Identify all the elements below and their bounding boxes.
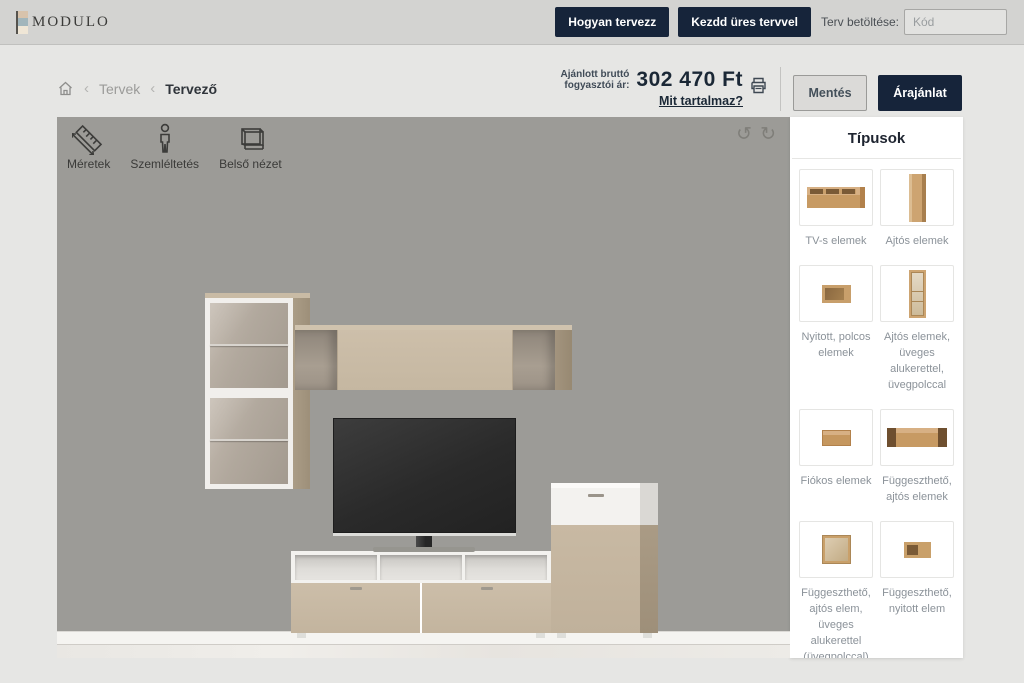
type-label: Ajtós elemek: [880, 233, 954, 249]
tall-door-thumb-icon: [909, 174, 926, 222]
design-canvas[interactable]: Méretek Szemléltetés Belső nézet ↺ ↻: [57, 117, 790, 658]
breadcrumb-designer: Tervező: [165, 81, 217, 97]
type-thumbnail: [799, 169, 873, 226]
divider: [780, 67, 781, 111]
wall-cabinet-open-right: [513, 330, 555, 390]
start-empty-plan-button[interactable]: Kezdd üres tervvel: [678, 7, 811, 37]
tv-stand-neck: [416, 536, 432, 547]
type-item-door-elements[interactable]: Ajtós elemek: [880, 169, 954, 249]
type-label: Függeszthető, ajtós elemek: [880, 473, 954, 505]
type-grid: TV-s elemek Ajtós elemek Nyitott, polcos…: [790, 159, 963, 658]
type-label: Ajtós elemek, üveges alukerettel, üvegpo…: [880, 329, 954, 393]
lowboard-door-left[interactable]: [291, 583, 420, 633]
type-thumbnail: [799, 521, 873, 578]
lowboard-slot: [465, 555, 547, 580]
quote-button[interactable]: Árajánlat: [878, 75, 962, 111]
logo[interactable]: MODULO: [16, 11, 110, 34]
illustration-label: Szemléltetés: [130, 157, 199, 171]
types-sidebar: Típusok TV-s elemek Ajtós elemek Nyitott…: [790, 117, 963, 658]
breadcrumb-plans[interactable]: Tervek: [99, 81, 140, 97]
price-amount: 302 470 Ft: [636, 68, 743, 92]
furniture-storage-cabinet[interactable]: [551, 483, 658, 633]
storage-cabinet-flap[interactable]: [551, 488, 640, 525]
cabinet-icon: [233, 123, 267, 155]
storage-cabinet-door[interactable]: [551, 525, 640, 633]
type-thumbnail: [799, 409, 873, 466]
glass-door-thumb-icon: [909, 270, 926, 318]
type-item-tv-elements[interactable]: TV-s elemek: [799, 169, 873, 249]
hanging-glass-thumb-icon: [822, 535, 851, 564]
load-plan-label: Terv betöltése:: [821, 15, 899, 29]
room-floor: [57, 645, 790, 658]
type-thumbnail: [880, 169, 954, 226]
type-item-glass-door-elements[interactable]: Ajtós elemek, üveges alukerettel, üvegpo…: [880, 265, 954, 393]
hanging-door-thumb-icon: [887, 428, 947, 447]
interior-view-label: Belső nézet: [219, 157, 282, 171]
tv-unit-thumb-icon: [807, 187, 865, 208]
undo-icon[interactable]: ↺: [736, 125, 752, 144]
home-icon[interactable]: [57, 80, 74, 97]
tv-stand-base: [373, 547, 475, 552]
app-header: MODULO Hogyan tervezz Kezdd üres tervvel…: [0, 0, 1024, 45]
dimensions-label: Méretek: [67, 157, 110, 171]
lowboard-slot: [380, 555, 462, 580]
type-label: TV-s elemek: [799, 233, 873, 249]
plan-code-input[interactable]: [904, 9, 1007, 35]
dimensions-tool[interactable]: Méretek: [63, 121, 114, 173]
open-shelf-thumb-icon: [822, 285, 851, 303]
price-details-link[interactable]: Mit tartalmaz?: [659, 94, 743, 108]
canvas-toolbar: Méretek Szemléltetés Belső nézet: [63, 121, 286, 173]
tv-screen[interactable]: [333, 418, 516, 533]
person-icon: [154, 123, 176, 155]
type-thumbnail: [799, 265, 873, 322]
drawer-thumb-icon: [822, 430, 851, 446]
furniture-tv-lowboard[interactable]: [291, 551, 551, 633]
illustration-tool[interactable]: Szemléltetés: [126, 121, 203, 173]
type-label: Függeszthető, nyitott elem: [880, 585, 954, 617]
lowboard-feet: [291, 633, 551, 638]
wall-cabinet-open-left: [295, 330, 337, 390]
lowboard-door-right[interactable]: [422, 583, 551, 633]
breadcrumb-separator: ‹: [84, 80, 89, 97]
how-to-design-button[interactable]: Hogyan tervezz: [555, 7, 669, 37]
type-item-hanging-glass-door-element[interactable]: Függeszthető, ajtós elem, üveges alukere…: [799, 521, 873, 658]
lowboard-open-shelves: [291, 551, 551, 583]
lowboard-slot: [295, 555, 377, 580]
furniture-wall-cabinet[interactable]: [295, 325, 572, 390]
type-label: Függeszthető, ajtós elem, üveges alukere…: [799, 585, 873, 658]
breadcrumb-separator: ‹: [150, 80, 155, 97]
price-block: Ajánlott bruttó fogyasztói ár: 302 470 F…: [561, 68, 743, 110]
logo-icon: [16, 11, 28, 34]
top-actions: Ajánlott bruttó fogyasztói ár: 302 470 F…: [561, 66, 962, 111]
price-label: Ajánlott bruttó fogyasztói ár:: [561, 69, 630, 91]
type-item-hanging-door-elements[interactable]: Függeszthető, ajtós elemek: [880, 409, 954, 505]
header-actions: Hogyan tervezz Kezdd üres tervvel Terv b…: [555, 7, 1007, 37]
furniture-glass-cabinet-stack[interactable]: [205, 293, 310, 489]
redo-icon[interactable]: ↻: [760, 125, 776, 144]
type-thumbnail: [880, 265, 954, 322]
logo-text: MODULO: [32, 14, 110, 31]
print-icon[interactable]: [749, 76, 768, 95]
lowboard-doors: [291, 583, 551, 633]
type-item-drawer-elements[interactable]: Fiókos elemek: [799, 409, 873, 489]
wall-cabinet-side: [555, 330, 572, 390]
sidebar-title: Típusok: [790, 117, 963, 158]
glass-cabinet-upper[interactable]: [205, 298, 293, 393]
storage-cabinet-side: [640, 483, 658, 633]
interior-view-tool[interactable]: Belső nézet: [215, 121, 286, 173]
type-thumbnail: [880, 521, 954, 578]
type-item-hanging-open-element[interactable]: Függeszthető, nyitott elem: [880, 521, 954, 617]
breadcrumb: ‹ Tervek ‹ Tervező: [57, 80, 217, 97]
ruler-icon: [72, 123, 106, 155]
save-button[interactable]: Mentés: [793, 75, 867, 111]
cabinet-side-panel: [293, 293, 310, 489]
history-controls: ↺ ↻: [736, 125, 776, 144]
type-item-open-shelf-elements[interactable]: Nyitott, polcos elemek: [799, 265, 873, 361]
hanging-open-thumb-icon: [904, 542, 931, 558]
type-thumbnail: [880, 409, 954, 466]
type-label: Fiókos elemek: [799, 473, 873, 489]
storage-cabinet-feet: [551, 633, 658, 638]
glass-cabinet-lower[interactable]: [205, 393, 293, 489]
wall-cabinet-door[interactable]: [337, 330, 513, 390]
type-label: Nyitott, polcos elemek: [799, 329, 873, 361]
